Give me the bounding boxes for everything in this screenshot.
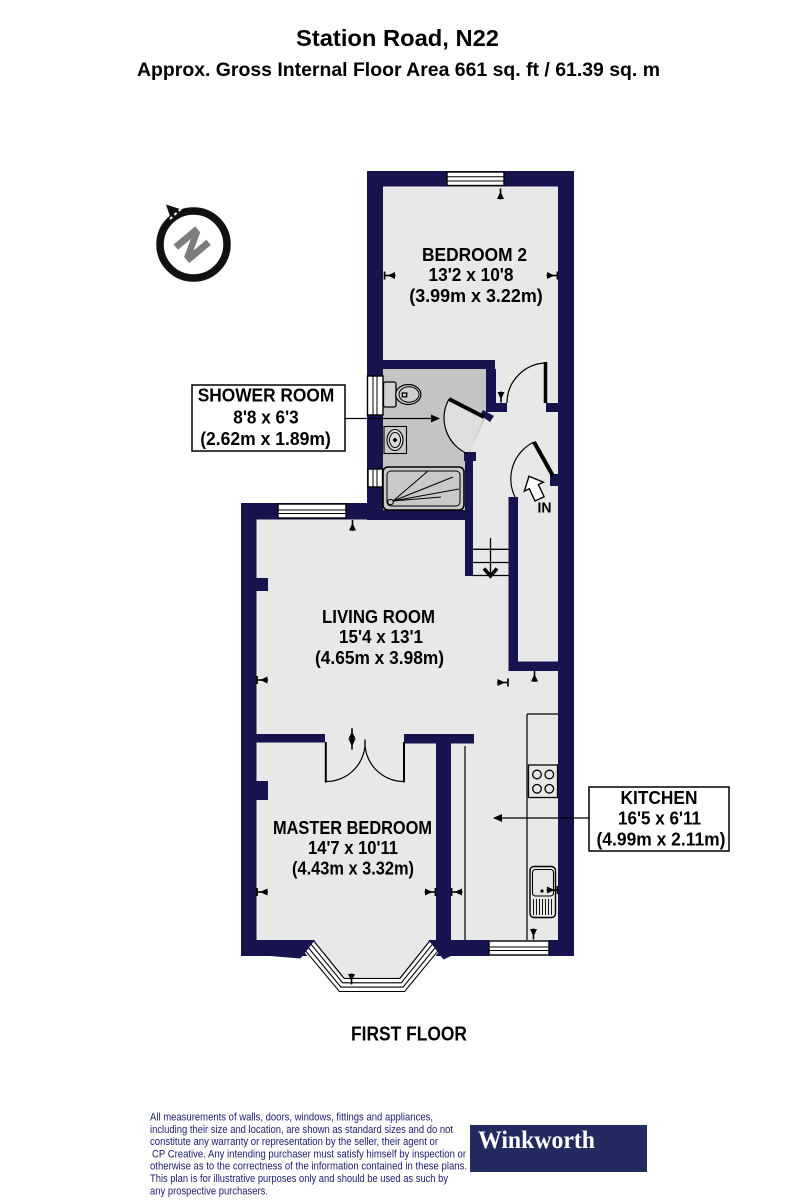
svg-text:any prospective purchasers.: any prospective purchasers. <box>150 1185 268 1197</box>
svg-text:(4.65m x 3.98m): (4.65m x 3.98m) <box>315 648 444 668</box>
svg-text:KITCHEN: KITCHEN <box>621 788 698 808</box>
svg-text:8'8 x 6'3: 8'8 x 6'3 <box>233 408 298 428</box>
svg-text:15'4 x 13'1: 15'4 x 13'1 <box>339 627 423 647</box>
svg-text:SHOWER ROOM: SHOWER ROOM <box>198 386 335 406</box>
svg-text:constitute any warranty or rep: constitute any warranty or representatio… <box>150 1136 438 1148</box>
svg-text:16'5 x 6'11: 16'5 x 6'11 <box>618 809 701 829</box>
svg-text:14'7 x 10'11: 14'7 x 10'11 <box>308 838 398 858</box>
svg-text:LIVING ROOM: LIVING ROOM <box>322 607 435 627</box>
svg-text:(2.62m x 1.89m): (2.62m x 1.89m) <box>200 429 331 449</box>
svg-text:BEDROOM 2: BEDROOM 2 <box>422 245 527 265</box>
svg-text:13'2 x 10'8: 13'2 x 10'8 <box>429 265 514 285</box>
svg-text:(4.43m x 3.32m): (4.43m x 3.32m) <box>292 859 414 879</box>
svg-text:FIRST FLOOR: FIRST FLOOR <box>351 1024 467 1046</box>
svg-text:Winkworth: Winkworth <box>478 1127 595 1154</box>
svg-text:IN: IN <box>538 500 552 517</box>
svg-text:Approx. Gross Internal Floor A: Approx. Gross Internal Floor Area 661 sq… <box>137 59 660 81</box>
svg-text:otherwise as to the correctnes: otherwise as to the correctness of the i… <box>150 1161 467 1173</box>
svg-text:This plan is for illustrative: This plan is for illustrative purposes o… <box>150 1173 448 1185</box>
svg-text:All measurements of walls, doo: All measurements of walls, doors, window… <box>150 1112 433 1124</box>
svg-text:Station Road, N22: Station Road, N22 <box>296 25 499 51</box>
svg-text:(4.99m x 2.11m): (4.99m x 2.11m) <box>597 830 726 850</box>
svg-text:including their size and locat: including their size and location, are s… <box>150 1124 453 1136</box>
svg-text:(3.99m x 3.22m): (3.99m x 3.22m) <box>409 286 543 306</box>
svg-text:MASTER BEDROOM: MASTER BEDROOM <box>273 818 432 838</box>
svg-text:CP Creative. Any intending pur: CP Creative. Any intending purchaser mus… <box>152 1148 466 1160</box>
